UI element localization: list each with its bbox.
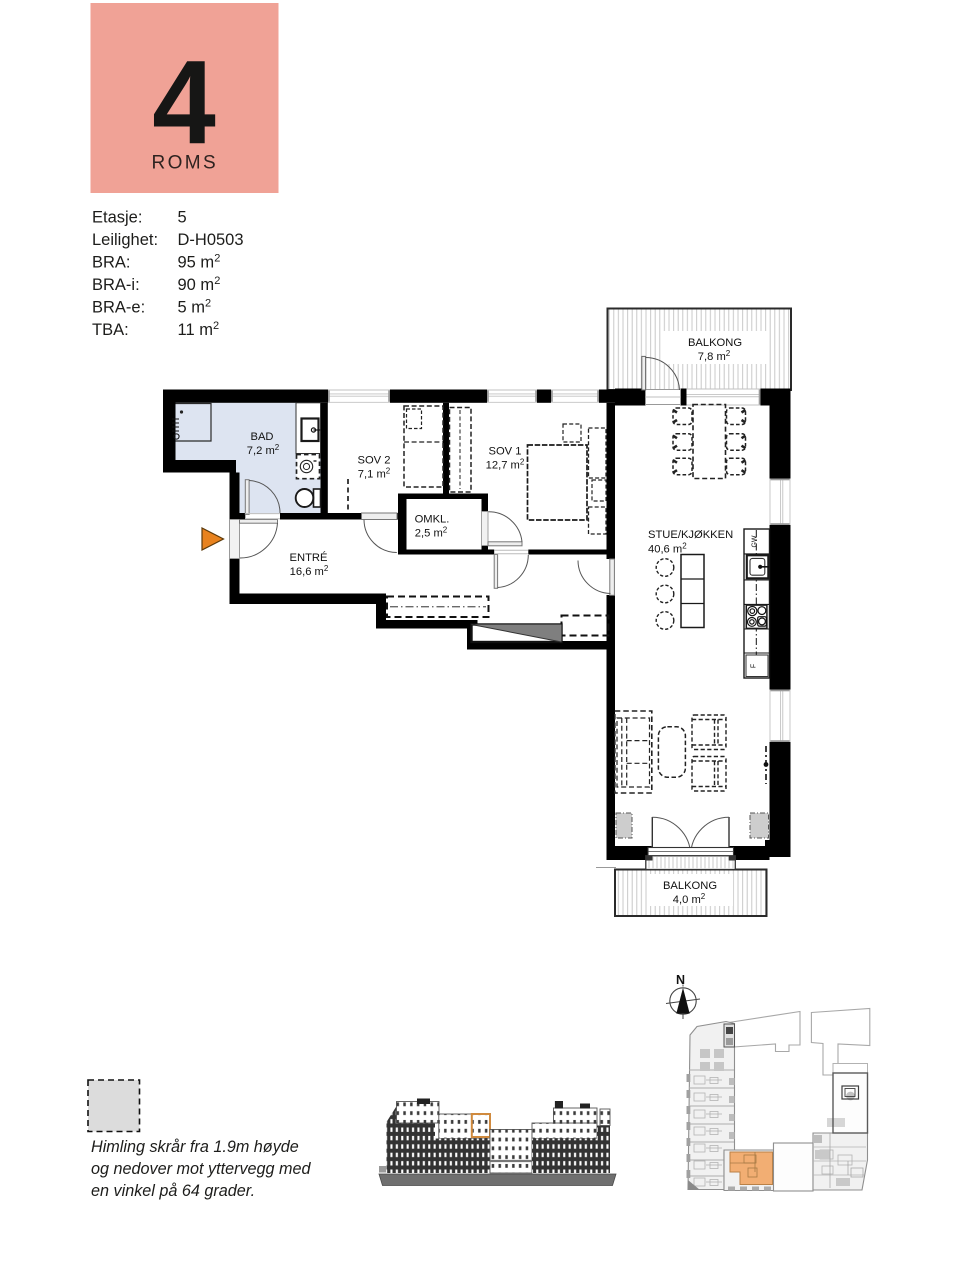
svg-text:D-H0503: D-H0503 (178, 231, 244, 249)
svg-text:ENTRÉ: ENTRÉ (290, 551, 328, 564)
svg-text:F: F (751, 664, 758, 668)
svg-text:og nedover mot yttervegg med: og nedover mot yttervegg med (91, 1160, 312, 1178)
svg-text:BAD: BAD (250, 431, 273, 443)
svg-text:Etasje:: Etasje: (92, 209, 142, 227)
svg-text:en vinkel på 64 grader.: en vinkel på 64 grader. (91, 1182, 255, 1200)
svg-text:SOV 1: SOV 1 (489, 446, 522, 458)
svg-text:12,7 m2: 12,7 m2 (486, 458, 525, 472)
svg-text:BALKONG: BALKONG (688, 337, 742, 349)
svg-text:40,6 m2: 40,6 m2 (648, 542, 687, 556)
svg-text:BRA:: BRA: (92, 253, 131, 271)
svg-text:SOV 2: SOV 2 (358, 455, 391, 467)
svg-text:BRA-i:: BRA-i: (92, 276, 140, 294)
svg-text:Leilighet:: Leilighet: (92, 231, 158, 249)
svg-text:95 m2: 95 m2 (178, 252, 221, 271)
svg-text:4: 4 (152, 35, 216, 169)
svg-text:STUE/KJØKKEN: STUE/KJØKKEN (648, 529, 733, 541)
svg-text:BRA-e:: BRA-e: (92, 298, 145, 316)
svg-text:5: 5 (178, 209, 187, 227)
svg-text:Himling skrår fra 1.9m høyde: Himling skrår fra 1.9m høyde (91, 1138, 299, 1156)
svg-text:TBA:: TBA: (92, 321, 129, 339)
svg-text:90 m2: 90 m2 (178, 275, 221, 294)
svg-text:16,6 m2: 16,6 m2 (290, 564, 329, 578)
svg-text:ROMS: ROMS (151, 153, 218, 174)
svg-text:OMKL.: OMKL. (415, 514, 450, 526)
svg-text:GW: GW (752, 535, 759, 547)
svg-text:11 m2: 11 m2 (178, 320, 220, 339)
svg-text:N: N (676, 973, 685, 987)
svg-text:BALKONG: BALKONG (663, 880, 717, 892)
